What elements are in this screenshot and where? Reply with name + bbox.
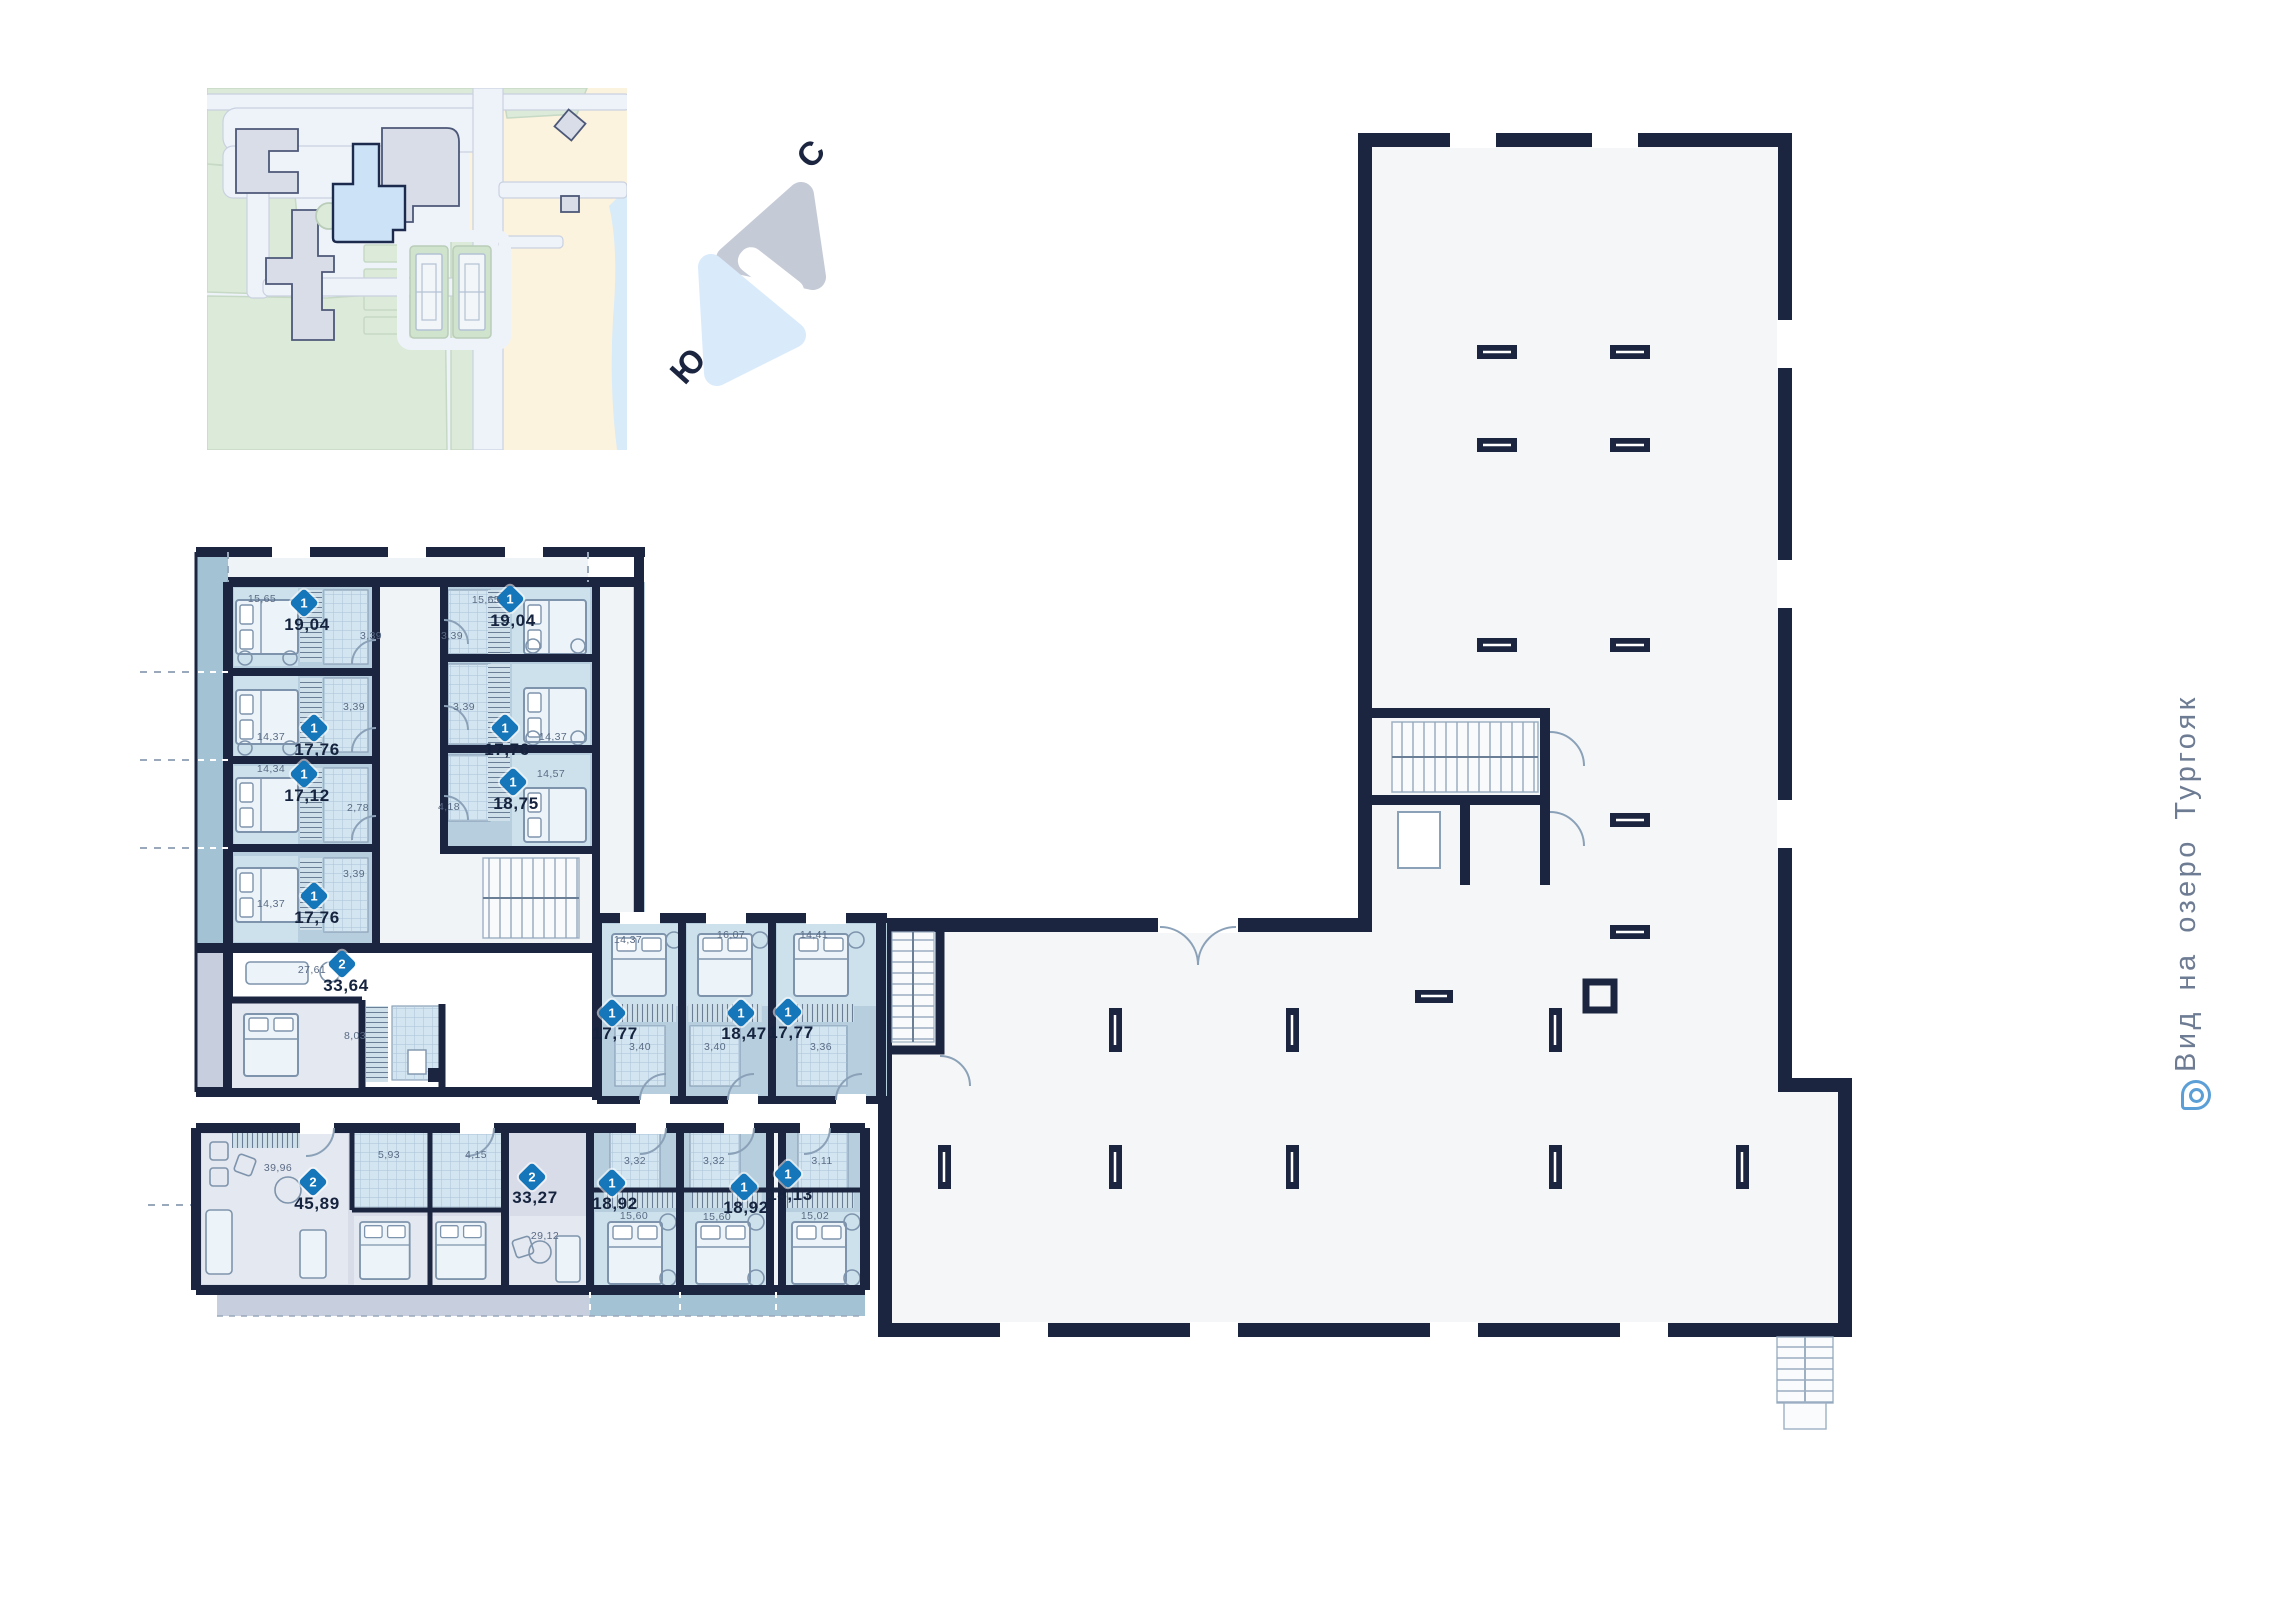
unit-room-count: 1 — [731, 1003, 752, 1024]
unit-room-count: 1 — [304, 718, 325, 739]
unit-room-count: 1 — [602, 1173, 623, 1194]
unit-room-count: 2 — [522, 1167, 543, 1188]
floorplan-page: С Ю — [0, 0, 2280, 1600]
unit-2room-interior — [228, 962, 442, 1092]
unit-badge-rooms[interactable]: 1 — [289, 588, 319, 618]
unit-badge-rooms[interactable]: 1 — [299, 881, 329, 911]
unit-badge-rooms[interactable]: 1 — [597, 1168, 627, 1198]
unit-badge-rooms[interactable]: 2 — [298, 1167, 328, 1197]
left-wing — [140, 546, 802, 1205]
unit-badge-rooms[interactable]: 1 — [495, 584, 525, 614]
unit-badge-rooms[interactable]: 1 — [490, 713, 520, 743]
right-wing — [885, 132, 1845, 1429]
unit-badge-rooms[interactable]: 2 — [327, 949, 357, 979]
unit-badge-rooms[interactable]: 1 — [597, 998, 627, 1028]
lake-view-note: Вид на озеро Тургояк — [2170, 532, 2203, 1072]
exterior-stair — [1777, 1337, 1833, 1429]
entrance-gap — [1158, 917, 1238, 933]
unit-room-count: 1 — [495, 718, 516, 739]
unit-room-count: 2 — [303, 1172, 324, 1193]
unit-badge-rooms[interactable]: 1 — [773, 997, 803, 1027]
unit-room-count: 1 — [294, 593, 315, 614]
unit-badge-rooms[interactable]: 1 — [726, 998, 756, 1028]
left-wing-stair — [483, 858, 579, 938]
floor-plan — [0, 0, 2280, 1600]
unit-room-count: 1 — [294, 764, 315, 785]
unit-badge-rooms[interactable]: 1 — [729, 1172, 759, 1202]
bottom-block — [196, 1122, 865, 1316]
unit-badge-rooms[interactable]: 1 — [289, 759, 319, 789]
unit-room-count: 1 — [304, 886, 325, 907]
unit-room-count: 1 — [500, 589, 521, 610]
unit-room-count: 1 — [778, 1002, 799, 1023]
unit-room-count: 1 — [778, 1164, 799, 1185]
unit-badge-rooms[interactable]: 2 — [517, 1162, 547, 1192]
unit-room-count: 2 — [332, 954, 353, 975]
unit-room-count: 1 — [503, 772, 524, 793]
unit-badge-rooms[interactable]: 1 — [773, 1159, 803, 1189]
unit-room-count: 1 — [734, 1177, 755, 1198]
unit-room-count: 1 — [602, 1003, 623, 1024]
view-direction-icon — [2181, 1080, 2211, 1110]
unit-badge-rooms[interactable]: 1 — [299, 713, 329, 743]
unit-badge-rooms[interactable]: 1 — [498, 767, 528, 797]
